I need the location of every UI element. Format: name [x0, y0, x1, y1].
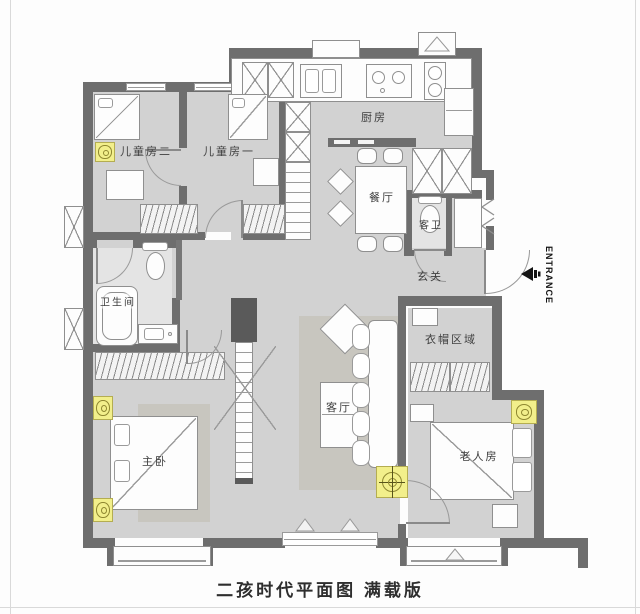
sink-basin — [305, 69, 319, 93]
window-open-triangle — [340, 518, 360, 532]
elderly-dresser — [410, 404, 434, 422]
crosshair-light-icon — [376, 466, 408, 498]
window-kids1 — [194, 83, 234, 91]
window-kids2 — [126, 83, 166, 91]
kids1-desk — [253, 158, 279, 186]
tv-cabinet-base — [235, 478, 253, 484]
folding-door-chevrons — [480, 198, 496, 236]
floor-plan-image: ENTRANCE 儿童房二 儿童房一 厨房 餐厅 客卫 玄关 卫生间 客厅 衣帽… — [0, 0, 640, 614]
hall-closet-shelves — [285, 162, 311, 240]
kids2-bed-throw — [96, 96, 138, 138]
vanity-basin — [144, 328, 164, 340]
toilet-bowl — [146, 252, 165, 280]
elderly-door-leaf — [406, 522, 450, 524]
ceiling-light-icon — [93, 396, 113, 420]
entrance-label: ENTRANCE — [520, 253, 578, 297]
dining-chair — [383, 236, 403, 252]
label-dining-room: 餐厅 — [369, 189, 395, 205]
cloakroom-wardrobe — [410, 362, 450, 392]
bathroom-sliding-door — [176, 240, 182, 300]
refrigerator — [444, 88, 474, 136]
kids2-desk — [106, 170, 144, 200]
sofa-cushion — [352, 324, 370, 350]
wall-living-right-upper — [398, 296, 406, 482]
wall-kids-divider-upper — [179, 92, 187, 148]
elderly-nightstand — [492, 504, 518, 528]
cloakroom-dresser — [412, 308, 438, 326]
elderly-pillow — [512, 428, 532, 458]
kids1-wardrobe — [243, 204, 285, 234]
tv-sightline — [214, 346, 276, 430]
window-bottom-center — [282, 532, 378, 546]
divider-tick — [358, 140, 374, 144]
window-open-triangle — [445, 548, 465, 561]
stove-knob — [380, 88, 385, 93]
shoe-cabinet-x — [442, 148, 472, 194]
bay-window-left-upper — [64, 206, 84, 248]
label-kitchen: 厨房 — [361, 109, 387, 125]
vanity-faucet — [168, 332, 172, 336]
label-kids-room-2: 儿童房二 — [120, 143, 172, 159]
cloakroom-wardrobe — [450, 362, 490, 392]
hall-closet-x — [285, 132, 311, 162]
kitchen-cabinet-x — [268, 62, 294, 98]
stove-burner — [372, 71, 385, 84]
tv-divider-column — [231, 298, 257, 342]
kitchen-cabinet-x — [242, 62, 268, 98]
frame-line-bottom — [0, 607, 640, 608]
wall-bottom-2 — [203, 538, 285, 548]
wall-right-mid — [492, 300, 502, 396]
label-living-room: 客厅 — [326, 399, 352, 415]
entrance-door-leaf — [484, 250, 486, 294]
window-open-triangle — [295, 518, 315, 532]
frame-line-right — [635, 0, 636, 614]
balcony-left-sill — [118, 560, 206, 562]
kids1-bed-throw — [230, 96, 266, 138]
wall-right-closet-top — [486, 170, 494, 200]
wall-guestbath-bottom-a — [404, 250, 414, 256]
sofa-cushion — [352, 382, 370, 408]
label-cloakroom: 衣帽区域 — [425, 331, 477, 347]
wall-bathroom-top-a — [83, 240, 97, 248]
refrigerator-line — [446, 110, 472, 111]
sofa-cushion — [352, 440, 370, 466]
ceiling-light-icon — [93, 498, 113, 522]
cooktop-burner — [428, 83, 442, 97]
wall-left — [83, 82, 93, 548]
bathroom-door-leaf — [96, 248, 98, 284]
master-door-leaf — [186, 330, 188, 364]
sink-basin — [322, 69, 336, 93]
entry-closet — [454, 198, 482, 248]
divider-tick — [334, 140, 350, 144]
ceiling-light-icon — [511, 400, 537, 424]
wall-bottom-4 — [502, 538, 588, 548]
bay-window-left-lower — [64, 308, 84, 350]
range-hood — [312, 40, 360, 58]
sofa — [368, 320, 398, 468]
label-kids-room-1: 儿童房一 — [203, 143, 255, 159]
wall-kids-divider-lower — [179, 186, 187, 206]
stove-burner — [392, 71, 405, 84]
wall-guestbath-right — [446, 190, 452, 256]
cooktop-burner — [428, 66, 442, 80]
wall-bottom-corner — [578, 538, 588, 568]
sofa-cushion — [352, 353, 370, 379]
label-bathroom: 卫生间 — [99, 294, 137, 309]
toilet-tank — [142, 242, 168, 251]
plan-title: 二孩时代平面图 满载版 — [0, 576, 640, 601]
wall-cloakroom-top — [404, 296, 492, 306]
toilet-tank — [418, 196, 442, 204]
ceiling-light-icon — [95, 142, 115, 162]
guestbath-door-leaf — [414, 249, 446, 251]
kids1-door-leaf — [241, 200, 243, 238]
dining-chair — [383, 148, 403, 164]
label-guest-bathroom: 客卫 — [419, 217, 443, 232]
label-master-bedroom: 主卧 — [142, 453, 168, 469]
frame-line-left — [10, 0, 11, 614]
kids2-wardrobe — [140, 204, 198, 234]
balcony-left — [113, 546, 211, 566]
hall-closet-x — [285, 102, 311, 132]
dining-chair — [357, 148, 377, 164]
elderly-pillow — [512, 462, 532, 492]
sofa-cushion — [352, 411, 370, 437]
dining-chair — [357, 236, 377, 252]
label-elderly-room: 老人房 — [460, 448, 499, 464]
label-entry-hall: 玄关 — [417, 268, 443, 284]
vent-triangle — [424, 36, 450, 52]
shoe-cabinet-x — [412, 148, 442, 194]
